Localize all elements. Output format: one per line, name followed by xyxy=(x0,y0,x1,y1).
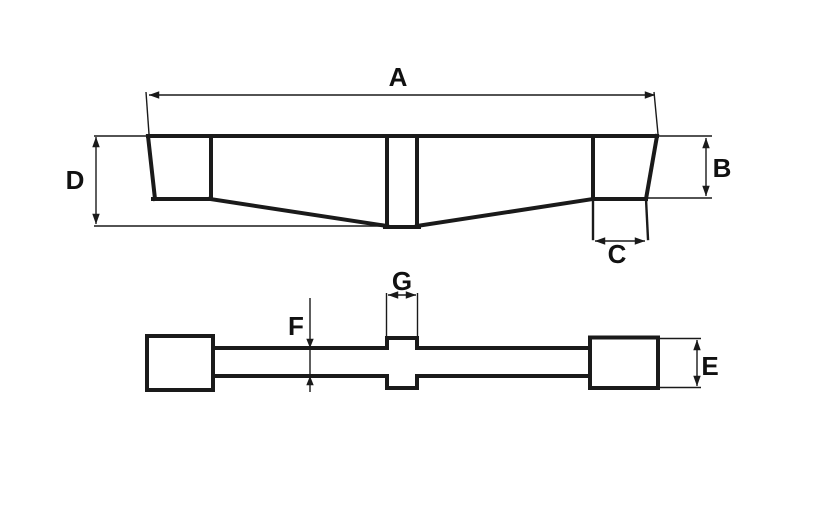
plan-left-end-block xyxy=(147,336,213,390)
side-right-edge xyxy=(646,136,657,199)
plan-center-tab-upper-outline xyxy=(387,338,417,348)
dim-label-e: E xyxy=(701,351,718,381)
technical-drawing-page: A D B C G F E xyxy=(0,0,822,516)
dim-label-g: G xyxy=(392,266,412,296)
side-claw-right-side xyxy=(646,199,648,239)
side-right-bottom-diagonal xyxy=(417,199,593,226)
side-left-bottom-diagonal xyxy=(210,199,387,226)
side-left-edge xyxy=(148,136,155,199)
dim-label-b: B xyxy=(713,153,732,183)
dim-a-extension-right xyxy=(654,92,658,134)
dim-label-f: F xyxy=(288,311,304,341)
plan-right-end-block xyxy=(590,338,658,389)
dim-label-c: C xyxy=(608,239,627,269)
dim-label-a: A xyxy=(389,62,408,92)
dim-label-d: D xyxy=(66,165,85,195)
dimension-diagram-canvas: A D B C G F E xyxy=(0,0,822,516)
dim-a-extension-left xyxy=(146,92,149,134)
side-view: A D B C xyxy=(66,62,732,269)
plan-center-tab-lower-outline xyxy=(387,376,417,388)
plan-view: G F E xyxy=(147,266,719,392)
